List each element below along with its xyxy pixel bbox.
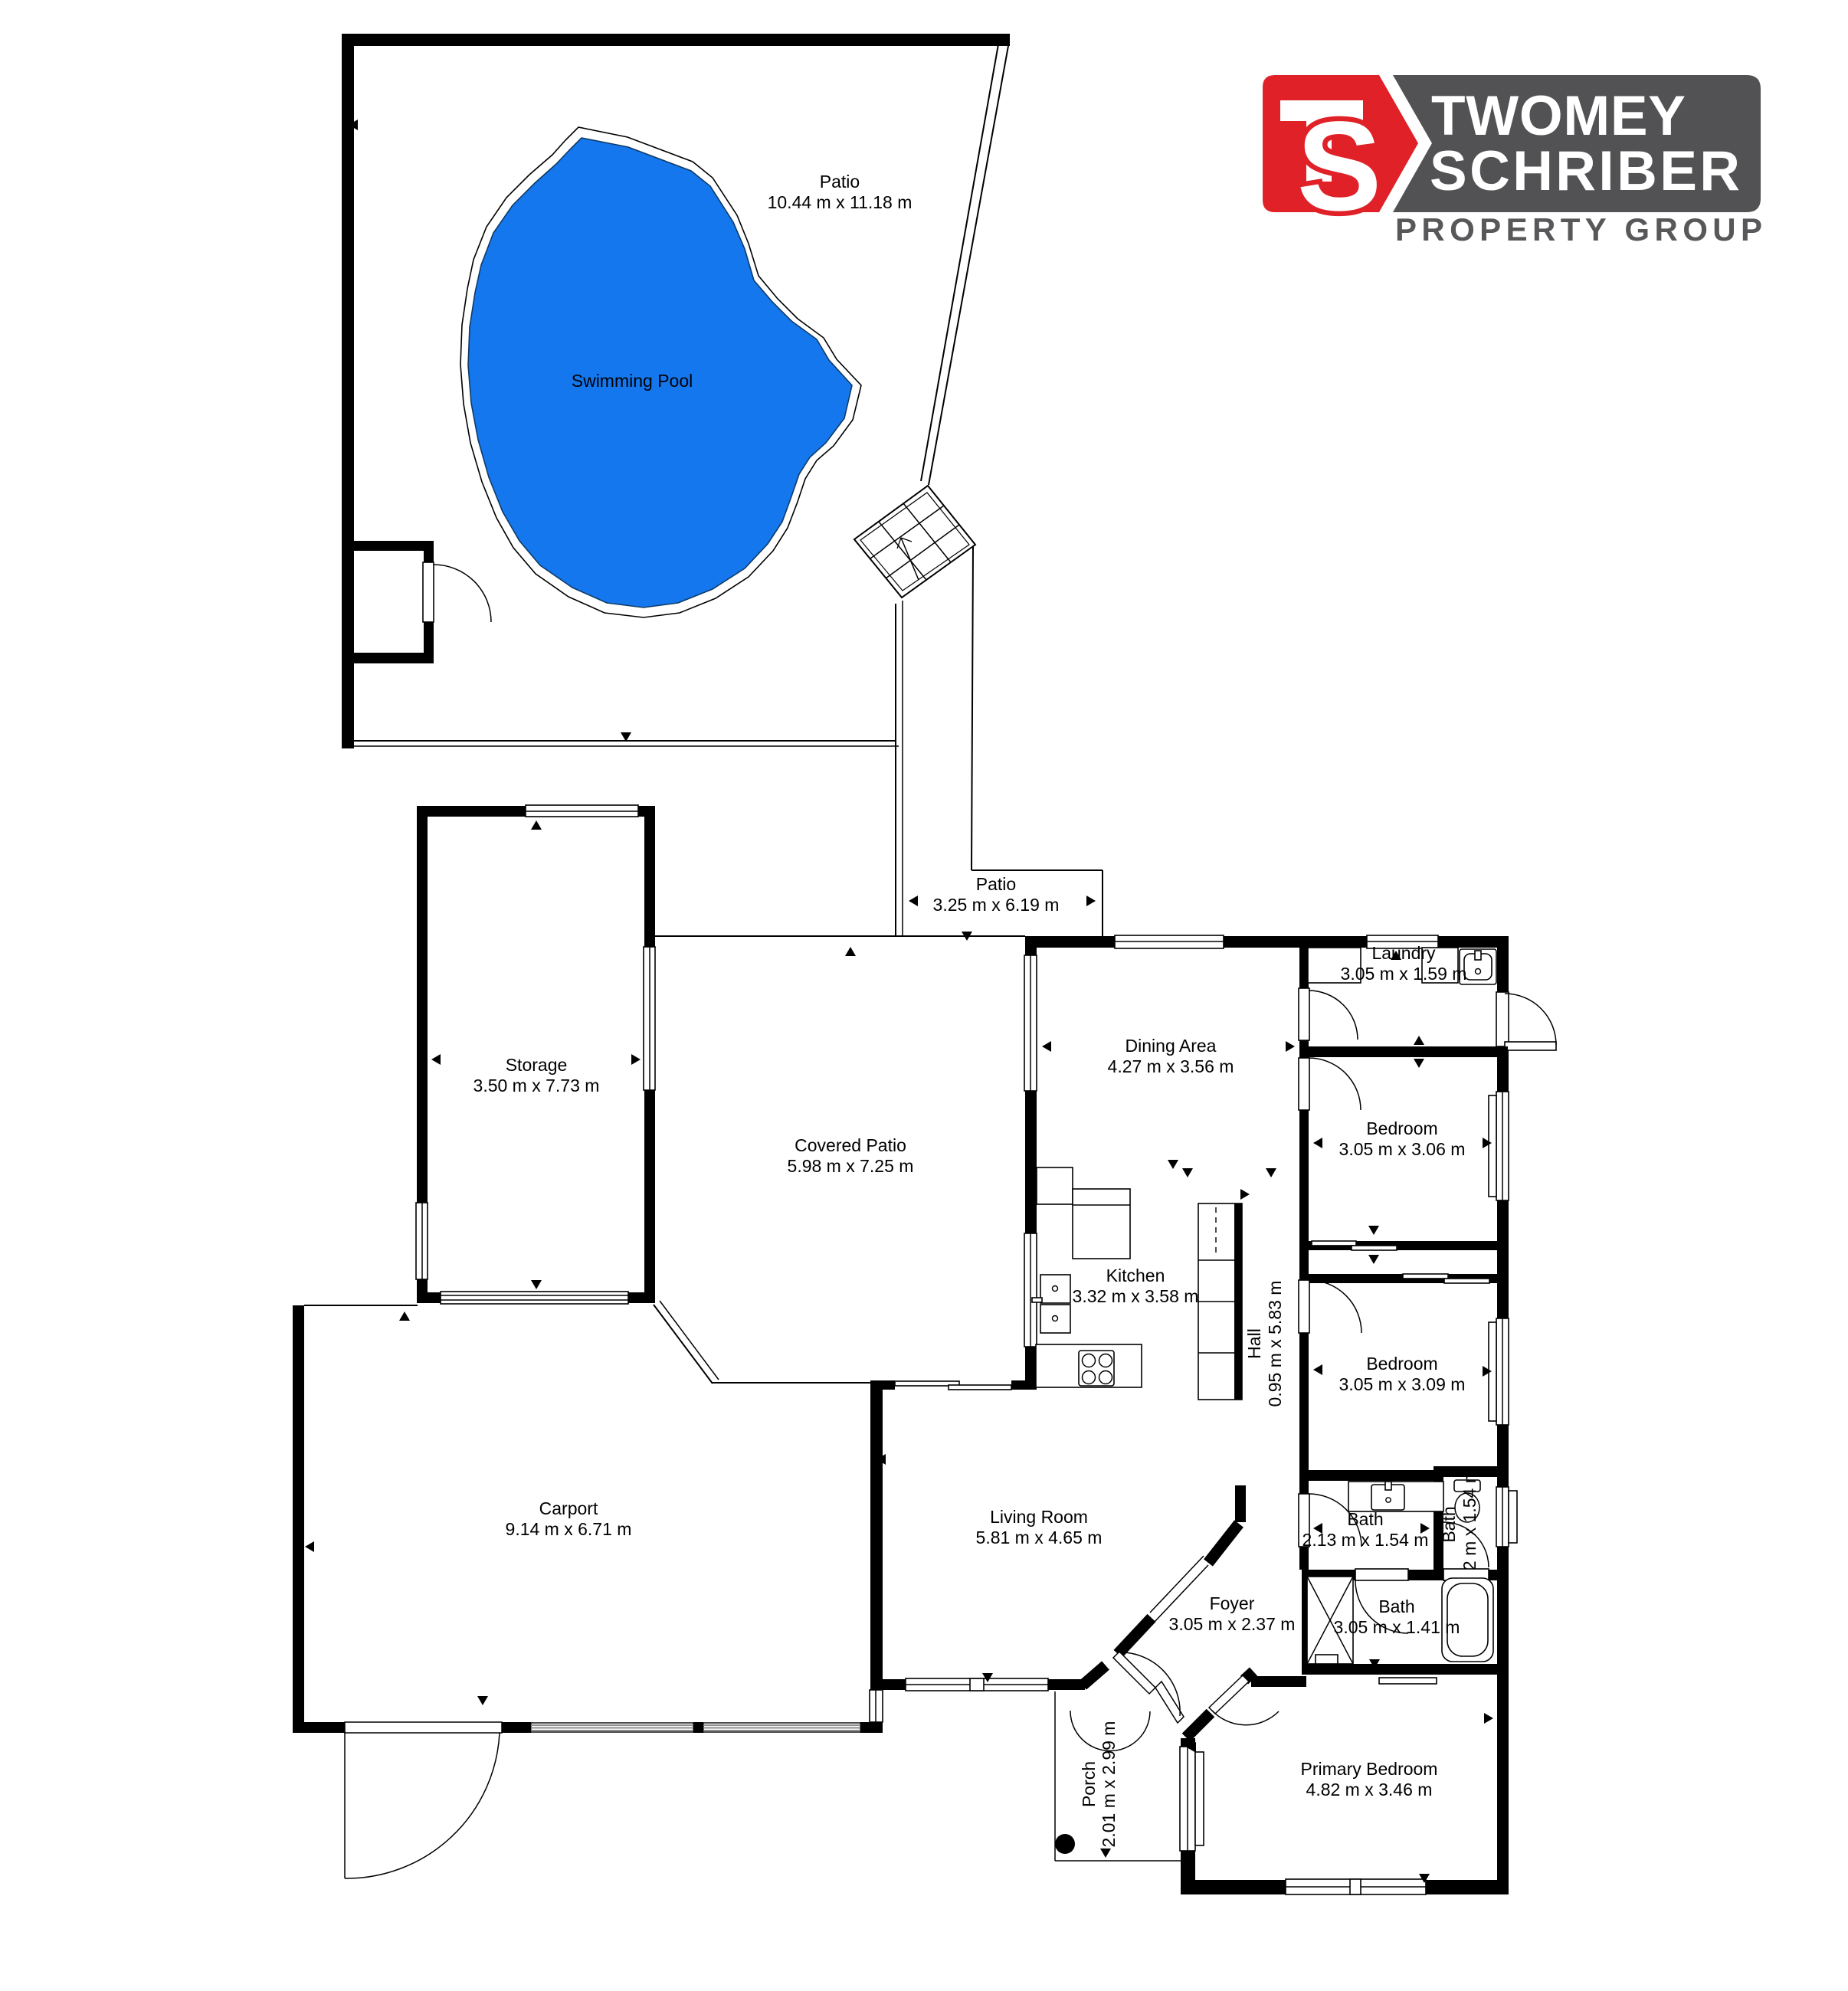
svg-text:3.05 m x 2.37 m: 3.05 m x 2.37 m [1169, 1614, 1296, 1634]
svg-text:Patio: Patio [820, 172, 860, 192]
svg-text:92 m x 1.54 m: 92 m x 1.54 m [1460, 1469, 1479, 1580]
svg-text:Dining Area: Dining Area [1126, 1036, 1217, 1056]
svg-text:5.81 m x 4.65 m: 5.81 m x 4.65 m [976, 1528, 1103, 1547]
svg-text:Bedroom: Bedroom [1366, 1118, 1437, 1138]
svg-text:Bath: Bath [1378, 1596, 1414, 1616]
svg-text:Foyer: Foyer [1210, 1593, 1255, 1613]
svg-text:Covered Patio: Covered Patio [795, 1135, 906, 1155]
svg-text:3.05 m x 3.06 m: 3.05 m x 3.06 m [1339, 1139, 1466, 1159]
svg-text:0.95 m x 5.83 m: 0.95 m x 5.83 m [1265, 1281, 1285, 1407]
svg-text:Storage: Storage [506, 1055, 568, 1075]
svg-text:3.32 m x 3.58 m: 3.32 m x 3.58 m [1073, 1286, 1199, 1306]
svg-text:4.82 m x 3.46 m: 4.82 m x 3.46 m [1306, 1780, 1433, 1799]
svg-text:3.50 m x 7.73 m: 3.50 m x 7.73 m [473, 1076, 600, 1095]
svg-text:5.98 m x 7.25 m: 5.98 m x 7.25 m [788, 1156, 914, 1176]
svg-text:9.14 m x 6.71 m: 9.14 m x 6.71 m [506, 1519, 632, 1539]
svg-text:TWOMEY: TWOMEY [1431, 85, 1686, 147]
svg-text:S: S [1297, 96, 1382, 237]
svg-text:3.05 m x 1.59 m: 3.05 m x 1.59 m [1341, 964, 1467, 984]
svg-text:3.05 m x 3.09 m: 3.05 m x 3.09 m [1339, 1374, 1466, 1394]
svg-text:SCHRIBER: SCHRIBER [1430, 140, 1740, 202]
svg-text:Primary Bedroom: Primary Bedroom [1301, 1759, 1438, 1779]
svg-text:Hall: Hall [1244, 1328, 1264, 1359]
svg-text:Swimming Pool: Swimming Pool [572, 371, 693, 391]
svg-text:Bath: Bath [1439, 1506, 1459, 1542]
svg-text:2.01 m x 2.99 m: 2.01 m x 2.99 m [1099, 1721, 1119, 1848]
svg-text:4.27 m x 3.56 m: 4.27 m x 3.56 m [1108, 1056, 1234, 1076]
svg-text:Bedroom: Bedroom [1366, 1354, 1437, 1374]
svg-text:Carport: Carport [539, 1498, 598, 1518]
svg-text:Kitchen: Kitchen [1106, 1266, 1165, 1285]
svg-text:Living Room: Living Room [990, 1507, 1088, 1527]
svg-text:Bath: Bath [1347, 1509, 1383, 1529]
svg-text:Patio: Patio [976, 874, 1016, 894]
svg-text:3.05 m x 1.41 m: 3.05 m x 1.41 m [1334, 1617, 1460, 1637]
svg-text:Laundry: Laundry [1371, 943, 1436, 963]
svg-text:Porch: Porch [1079, 1761, 1099, 1807]
svg-text:10.44 m x 11.18 m: 10.44 m x 11.18 m [768, 192, 913, 212]
svg-text:PROPERTY GROUP: PROPERTY GROUP [1395, 211, 1762, 247]
svg-text:3.25 m x 6.19 m: 3.25 m x 6.19 m [933, 895, 1060, 915]
